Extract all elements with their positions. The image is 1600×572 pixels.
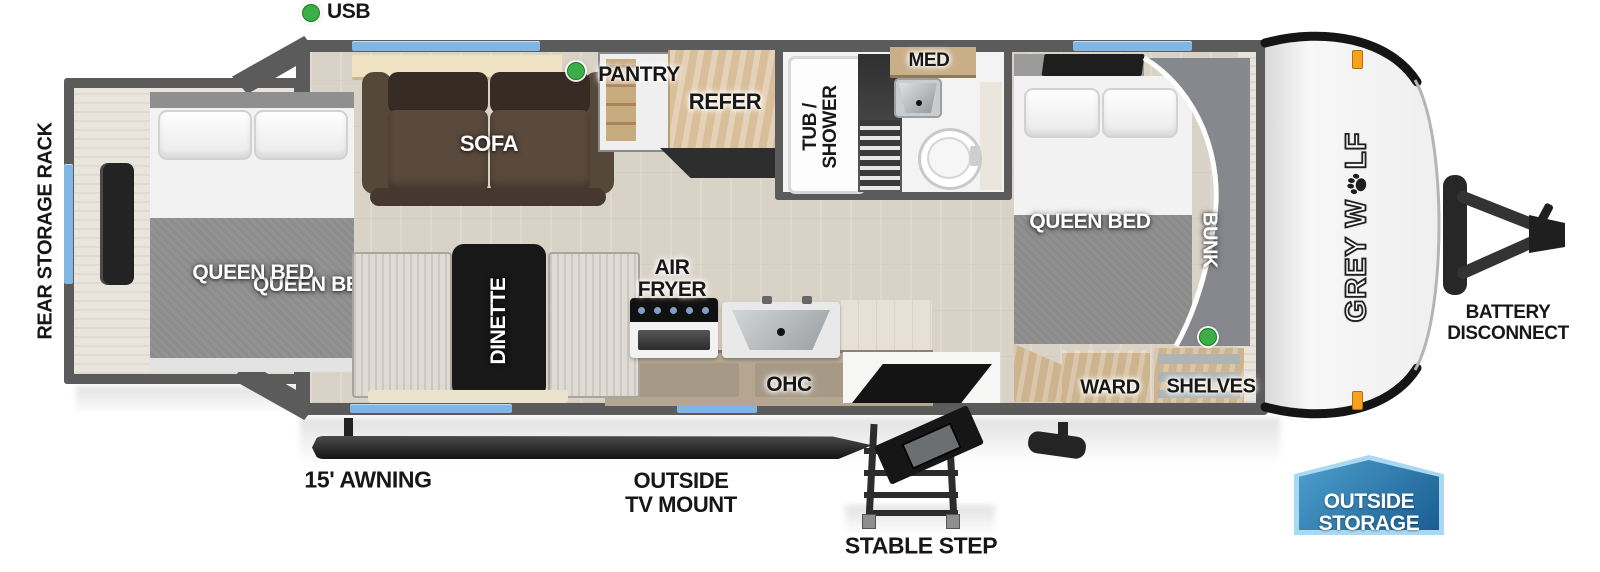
tongue-leg-lower <box>1463 239 1539 273</box>
rear-bed-footboard <box>150 358 354 372</box>
window-dinette <box>350 404 512 413</box>
step-rung-4 <box>866 510 958 516</box>
usb-legend-label: USB <box>327 0 370 24</box>
shower-door-louvers <box>860 120 900 190</box>
usb-outlet-sofa-icon <box>567 62 585 80</box>
front-queen-bed-label: QUEEN BED <box>1029 210 1150 234</box>
rear-queen-bed <box>150 92 354 372</box>
ward-label: WARD <box>1080 377 1140 400</box>
bunk-label: BUNK <box>1198 212 1221 268</box>
rear-queen-bed-text: QUEEN BED <box>192 261 313 285</box>
sink-drain <box>777 328 785 336</box>
bath-sink-basin <box>899 83 937 113</box>
kitchen-backsplash <box>840 300 932 352</box>
window-above-front-bed <box>1073 41 1192 51</box>
front-bed-pillow-left <box>1024 88 1100 138</box>
rear-storage-rack-label: REAR STORAGE RACK <box>35 122 58 339</box>
dinette-ledge <box>368 390 568 403</box>
air-fryer-line2: FRYER <box>638 279 706 301</box>
air-fryer-line1: AIR <box>638 257 706 279</box>
oven-opening <box>638 330 710 350</box>
range-air-fryer <box>630 298 718 358</box>
dinette-bench-right <box>548 252 640 398</box>
med-label: MED <box>908 50 949 72</box>
awning-tube <box>312 436 872 459</box>
tongue-leg-upper <box>1463 197 1539 227</box>
shelves-label: SHELVES <box>1166 376 1255 399</box>
brand-text-part1: GREY W <box>1341 199 1374 322</box>
bath-sink <box>894 78 942 118</box>
marker-light-top <box>1352 50 1363 69</box>
kitchen-sink <box>722 302 840 358</box>
outside-tv-mount-line1: OUTSIDE <box>625 469 737 493</box>
rear-bed-pillow-left <box>158 110 252 160</box>
dinette-bench-left <box>352 252 452 398</box>
battery-disconnect-label: BATTERY DISCONNECT <box>1447 302 1569 344</box>
pantry-label: PANTRY <box>598 63 680 87</box>
window-above-sofa <box>352 41 540 51</box>
paw-print-icon <box>1343 171 1370 198</box>
refer-label: REFER <box>689 89 762 115</box>
step-rung-3 <box>864 492 958 498</box>
dinette-label: DINETTE <box>487 277 511 364</box>
coupler <box>1529 215 1565 253</box>
outside-storage-line2: STORAGE <box>1319 513 1420 535</box>
step-foot-right <box>946 514 960 529</box>
air-fryer-label: AIR FRYER <box>638 257 706 301</box>
ohc-label: OHC <box>766 373 811 397</box>
sofa-label: SOFA <box>460 131 518 157</box>
burner-1 <box>638 307 645 314</box>
outside-storage-badge: OUTSIDE STORAGE <box>1294 455 1444 535</box>
tub-shower-line1: TUB / <box>801 85 821 168</box>
outside-tv-mount-line2: TV MOUNT <box>625 493 737 517</box>
stable-step-label: STABLE STEP <box>845 533 997 560</box>
bath-sink-drain <box>916 100 922 106</box>
battery-disconnect-line2: DISCONNECT <box>1447 323 1569 344</box>
toilet <box>918 128 980 186</box>
burner-2 <box>654 307 661 314</box>
rear-bed-pillow-right <box>254 110 348 160</box>
sofa-back-cushion-left <box>388 72 488 114</box>
burner-5 <box>702 307 709 314</box>
toilet-seat <box>927 137 971 179</box>
bunk-area <box>1130 52 1250 348</box>
stabilizer-jack-pin <box>1058 422 1068 438</box>
toilet-hinge <box>970 146 980 166</box>
usb-outlet-bedroom-icon <box>1199 328 1217 346</box>
burner-4 <box>686 307 693 314</box>
floorplan-canvas: USB QUEEN BED SOFA PANTRY REFER <box>0 0 1600 572</box>
rear-storage-rack-unit <box>100 163 134 285</box>
sink-faucet <box>762 296 772 304</box>
usb-indicator-icon <box>302 4 320 22</box>
rear-window <box>64 164 73 284</box>
battery-disconnect-line1: BATTERY <box>1447 302 1569 323</box>
tub-shower-line2: SHOWER <box>821 85 841 168</box>
sink-knob <box>802 296 812 304</box>
outside-storage-label: OUTSIDE STORAGE <box>1319 491 1420 535</box>
shelf-band-1 <box>1158 354 1240 364</box>
bath-door-panel <box>980 82 1002 190</box>
awning-label: 15' AWNING <box>304 467 431 494</box>
rear-bed-platform-top <box>150 92 354 108</box>
brand-logo: GREY W LF <box>1341 132 1374 323</box>
step-foot-left <box>862 514 876 529</box>
marker-light-bottom <box>1352 391 1363 410</box>
tub-shower-label: TUB / SHOWER <box>801 85 841 168</box>
outside-tv-mount-label: OUTSIDE TV MOUNT <box>625 469 737 517</box>
burner-3 <box>670 307 677 314</box>
outside-storage-line1: OUTSIDE <box>1319 491 1420 513</box>
brand-text-part2: LF <box>1341 132 1374 169</box>
sofa-front-lip <box>370 188 606 206</box>
